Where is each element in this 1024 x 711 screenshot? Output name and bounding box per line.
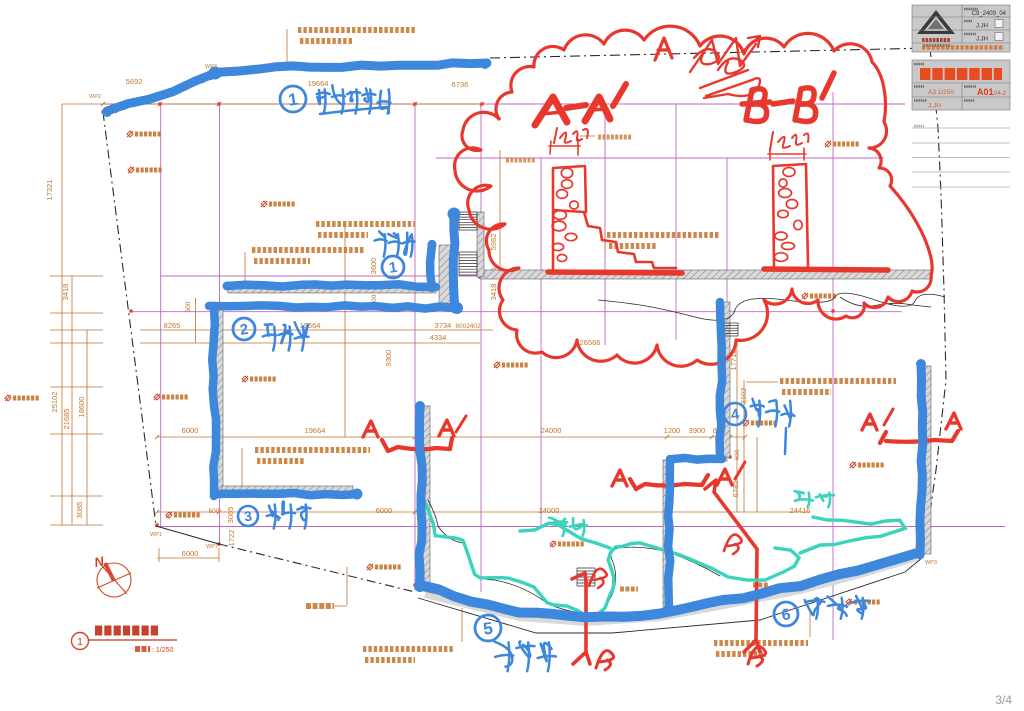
svg-text:WP1: WP1 [150,532,162,538]
svg-text:3085: 3085 [75,502,84,519]
svg-text:8002402: 8002402 [455,323,481,330]
svg-text:25102: 25102 [50,392,59,413]
svg-text:1200: 1200 [664,426,681,435]
svg-text:WP2: WP2 [89,94,101,100]
svg-text:5692: 5692 [126,77,143,86]
svg-text:J.JH: J.JH [976,24,988,30]
svg-text:3085: 3085 [226,507,235,524]
svg-text:6000: 6000 [182,426,199,435]
svg-text:1: 1 [77,637,83,648]
svg-text:600: 600 [185,301,192,312]
svg-text:6000: 6000 [182,549,199,558]
svg-text:1722: 1722 [227,530,236,547]
svg-text:24000: 24000 [539,506,560,515]
svg-text:: 1/250: : 1/250 [152,647,174,654]
svg-text:C9_2409_04: C9_2409_04 [972,11,1007,17]
svg-text:3600: 3600 [369,258,378,275]
svg-text:600: 600 [209,508,220,515]
svg-text:WP3: WP3 [925,560,937,566]
svg-text:19664: 19664 [305,426,326,435]
svg-text:24000: 24000 [541,426,562,435]
svg-text:8265: 8265 [164,321,181,330]
svg-text:WP7: WP7 [206,544,218,550]
svg-text:J.JH: J.JH [928,103,941,110]
svg-text:26566: 26566 [580,338,601,347]
svg-text:18600: 18600 [77,397,86,418]
svg-text:3418: 3418 [61,284,70,301]
svg-text:21685: 21685 [62,409,71,430]
svg-text:9300: 9300 [384,350,393,367]
svg-text:19664: 19664 [308,79,329,88]
svg-text:3418: 3418 [489,284,498,301]
svg-text:3900: 3900 [689,426,706,435]
svg-text:17321: 17321 [45,180,54,201]
svg-text:6000: 6000 [376,506,393,515]
svg-text:A3 1/250: A3 1/250 [928,89,954,96]
svg-text:J.JH: J.JH [976,37,988,43]
svg-text:3/4: 3/4 [995,693,1012,707]
svg-text:4334: 4334 [430,333,447,342]
svg-text:6736: 6736 [452,80,469,89]
svg-text:3102: 3102 [739,388,748,405]
svg-text:5982: 5982 [489,234,498,251]
svg-text:04-2: 04-2 [994,91,1007,97]
svg-text:A01: A01 [977,87,994,97]
svg-text:600: 600 [734,449,741,460]
svg-text:3734: 3734 [435,321,452,330]
